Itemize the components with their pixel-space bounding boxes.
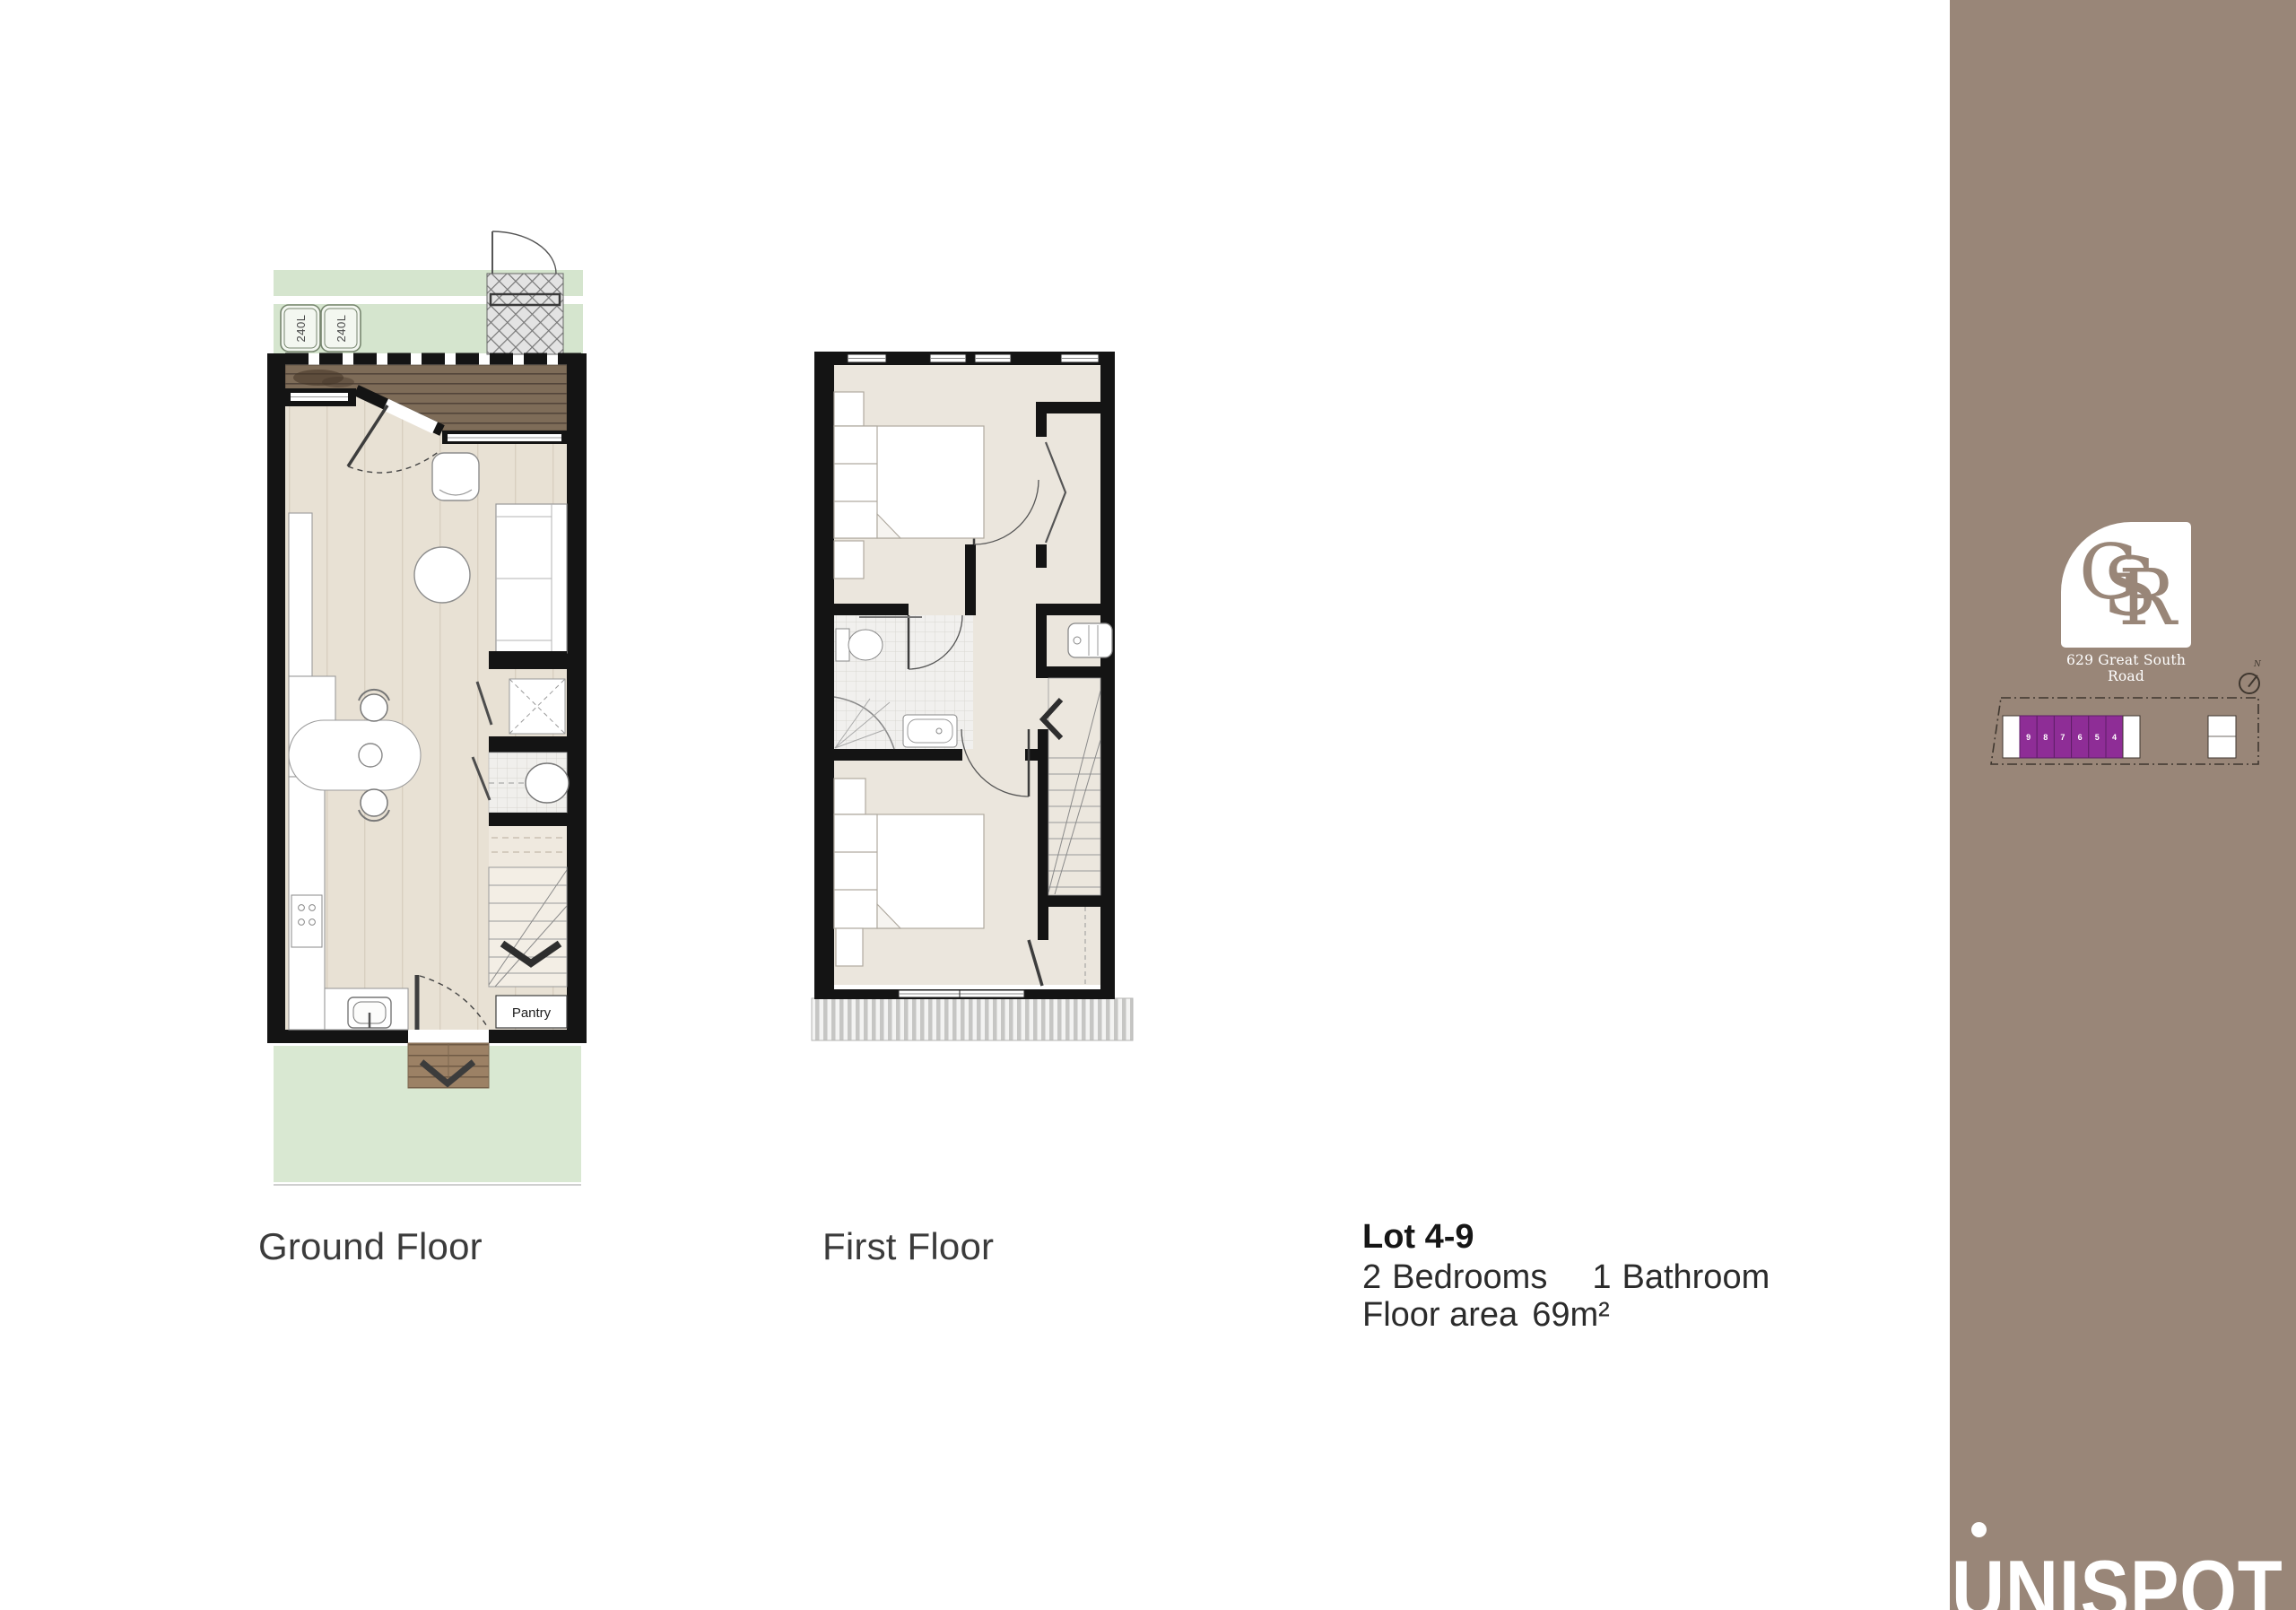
cylinder-fixture bbox=[1068, 623, 1112, 657]
bin-240l-label: 240L bbox=[317, 309, 364, 348]
site-unit-number: 6 bbox=[2072, 716, 2089, 758]
brochure-page: 240L 240L Pantry Ground Floor First Floo… bbox=[0, 0, 2296, 1610]
ground-floor-label: Ground Floor bbox=[258, 1225, 483, 1268]
lot-info: Lot 4-9 2 Bedrooms 1 Bathroom Floor area… bbox=[1362, 1216, 1770, 1333]
site-unit-numbers: 9 8 7 6 5 4 bbox=[2020, 716, 2123, 758]
sidebar: G S R 629 Great South Road N 9 bbox=[1950, 0, 2296, 1610]
site-unit-number: 8 bbox=[2037, 716, 2054, 758]
lot-bed-bath-line: 2 Bedrooms 1 Bathroom bbox=[1362, 1259, 1770, 1295]
logo-address: 629 Great South Road bbox=[2052, 652, 2200, 684]
balcony-deck bbox=[812, 998, 1133, 1040]
site-unit-number: 4 bbox=[2106, 716, 2123, 758]
monogram-letter-r: R bbox=[2118, 560, 2177, 637]
ground-stairs bbox=[489, 867, 567, 987]
lot-area-line: Floor area 69m² bbox=[1362, 1297, 1770, 1333]
first-floor-label: First Floor bbox=[822, 1225, 994, 1268]
pantry-label: Pantry bbox=[496, 997, 567, 1028]
site-unit-number: 9 bbox=[2020, 716, 2037, 758]
floor-area-value: 69m² bbox=[1532, 1297, 1610, 1333]
entry-path-gate bbox=[487, 231, 563, 354]
compass-north-label: N bbox=[2254, 660, 2261, 669]
bedrooms-label: Bedrooms bbox=[1392, 1259, 1547, 1295]
brand-dot bbox=[1971, 1522, 1987, 1537]
site-unit-number: 5 bbox=[2089, 716, 2106, 758]
brand-wordmark: UNISPOT bbox=[1952, 1542, 2283, 1610]
floor-area-label: Floor area bbox=[1362, 1297, 1518, 1333]
lot-title: Lot 4-9 bbox=[1362, 1216, 1770, 1258]
first-floor-plan bbox=[807, 345, 1148, 1054]
bedrooms-count: 2 bbox=[1362, 1259, 1381, 1295]
bathrooms-count: 1 bbox=[1592, 1259, 1611, 1295]
ground-floor-plan bbox=[251, 215, 610, 1202]
bathrooms-label: Bathroom bbox=[1622, 1259, 1770, 1295]
site-unit-number: 7 bbox=[2054, 716, 2071, 758]
brand-logo: G S R bbox=[2061, 522, 2191, 648]
